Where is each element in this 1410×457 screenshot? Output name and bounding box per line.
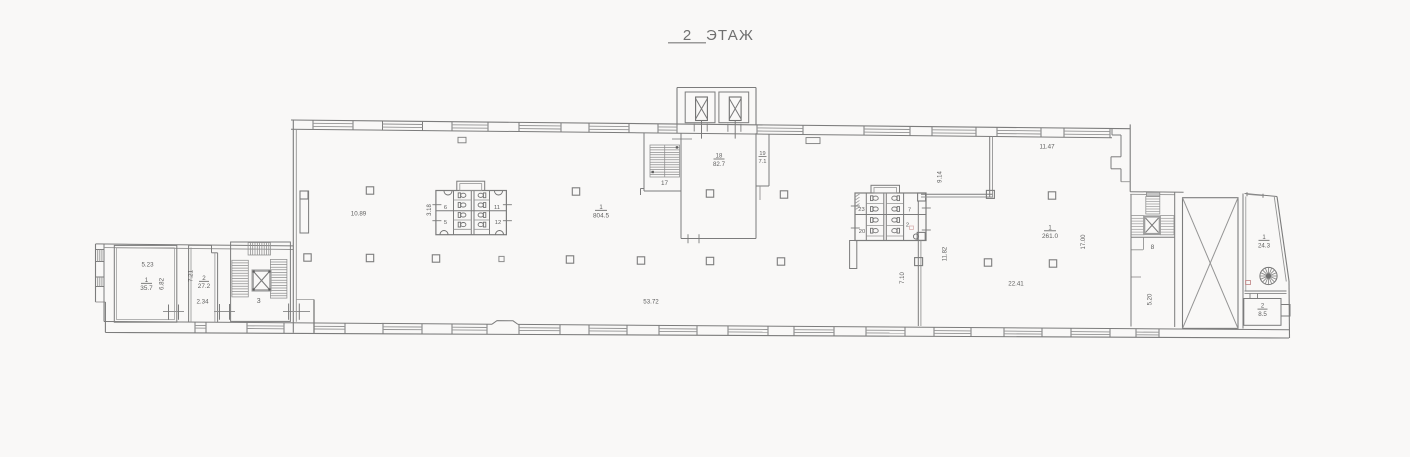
svg-text:2: 2 [202,275,206,282]
svg-text:261.0: 261.0 [1042,233,1058,240]
svg-text:5.23: 5.23 [141,262,154,269]
svg-text:2: 2 [906,223,909,229]
svg-text:7: 7 [908,208,911,214]
svg-text:5.20: 5.20 [1148,293,1154,305]
svg-text:11.47: 11.47 [1039,144,1055,151]
svg-text:7.10: 7.10 [900,272,906,284]
svg-text:11: 11 [494,205,500,211]
svg-text:3: 3 [257,298,261,305]
svg-text:5: 5 [444,220,447,226]
svg-text:11.82: 11.82 [943,246,949,261]
svg-text:8.5: 8.5 [1258,311,1267,318]
svg-text:6.82: 6.82 [159,277,166,290]
svg-text:35.7: 35.7 [140,285,153,292]
svg-text:17.00: 17.00 [1081,234,1087,250]
svg-text:8: 8 [1151,244,1155,251]
svg-text:10.89: 10.89 [351,210,367,217]
svg-text:24.3: 24.3 [1258,242,1271,249]
svg-text:6: 6 [444,205,447,211]
svg-text:27.2: 27.2 [198,283,211,290]
svg-text:804.5: 804.5 [593,213,609,220]
svg-text:23: 23 [858,207,864,213]
svg-text:1: 1 [145,277,149,284]
svg-text:20: 20 [859,229,865,235]
svg-text:7.21: 7.21 [188,269,195,282]
svg-text:22.41: 22.41 [1008,281,1024,288]
svg-text:12: 12 [495,220,501,226]
svg-text:2: 2 [683,27,691,44]
svg-text:82.7: 82.7 [713,161,726,168]
svg-text:17: 17 [661,180,669,187]
svg-text:2.34: 2.34 [196,299,209,306]
svg-text:3.18: 3.18 [427,204,433,216]
svg-text:9.14: 9.14 [938,171,944,183]
svg-text:ЭТАЖ: ЭТАЖ [706,27,754,44]
svg-text:7.1: 7.1 [758,159,766,165]
svg-text:53.72: 53.72 [643,298,659,305]
